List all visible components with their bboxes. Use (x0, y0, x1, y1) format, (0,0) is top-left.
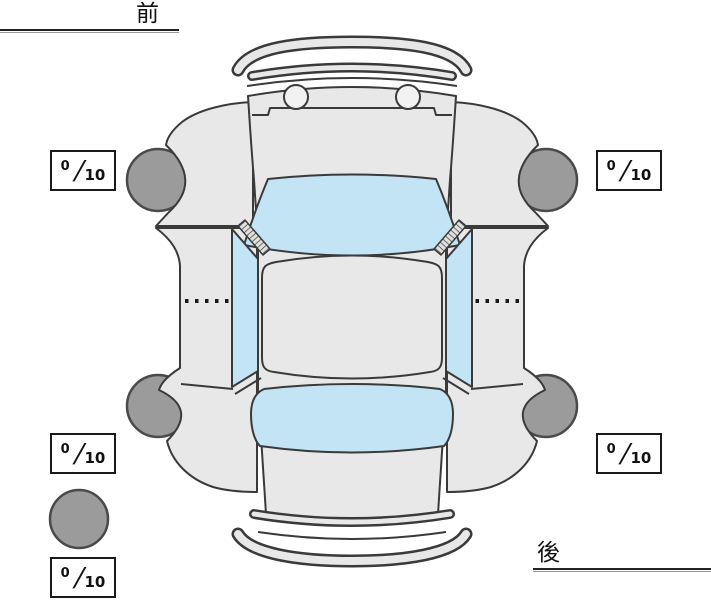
rear-panel-line (258, 532, 446, 539)
tread-box-front-right: 0 / 10 (596, 150, 662, 191)
tire-spare (50, 490, 108, 548)
windshield (244, 175, 460, 256)
tread-value: 0 (61, 442, 70, 457)
tread-value: 0 (607, 159, 616, 174)
rear-underline (533, 568, 711, 570)
rear-window (251, 384, 453, 453)
tread-box-spare: 0 / 10 (50, 557, 116, 598)
tread-value: 0 (61, 159, 70, 174)
tread-box-rear-right: 0 / 10 (596, 433, 662, 474)
tread-max: 10 (630, 166, 651, 184)
tread-max: 10 (84, 166, 105, 184)
tire-tread-diagram-page: 前 後 0 / 10 0 / 10 0 / 10 0 / 10 0 / 10 (0, 0, 711, 600)
headlight-left-icon (284, 85, 308, 109)
tread-box-rear-left: 0 / 10 (50, 433, 116, 474)
tread-box-front-left: 0 / 10 (50, 150, 116, 191)
front-cowl-line (247, 78, 457, 86)
rear-label: 後 (537, 540, 561, 568)
tread-max: 10 (84, 449, 105, 467)
headlight-right-icon (396, 85, 420, 109)
tread-max: 10 (630, 449, 651, 467)
car-top-view-diagram (0, 0, 711, 600)
front-label: 前 (136, 1, 160, 29)
front-underline (0, 29, 179, 31)
tread-value: 0 (61, 566, 70, 581)
tread-max: 10 (84, 573, 105, 591)
tread-value: 0 (607, 442, 616, 457)
roof-panel (262, 256, 442, 379)
